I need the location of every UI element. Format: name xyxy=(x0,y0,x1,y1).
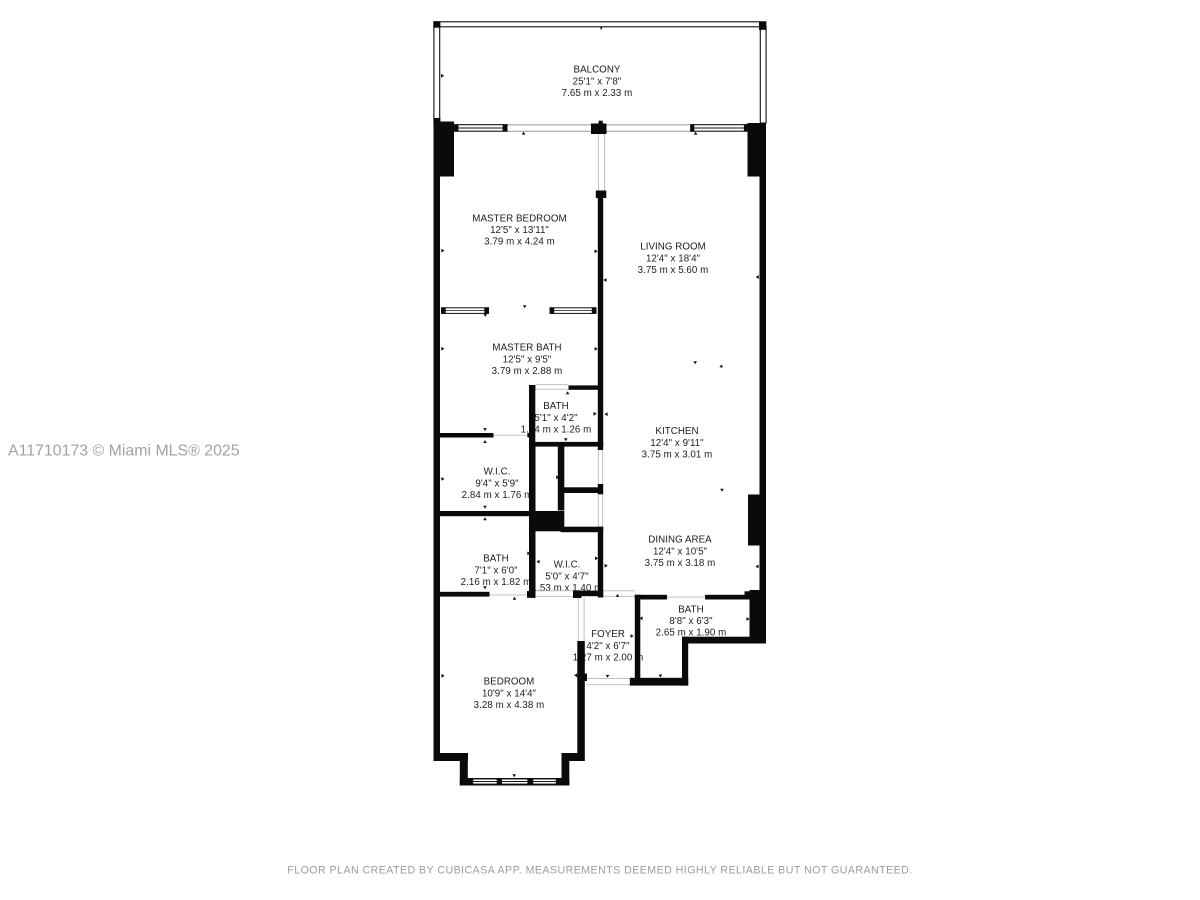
svg-text:3.28 m x 4.38 m: 3.28 m x 4.38 m xyxy=(474,700,545,711)
svg-text:25'1" x 7'8": 25'1" x 7'8" xyxy=(573,76,622,87)
svg-text:BEDROOM: BEDROOM xyxy=(484,677,535,688)
svg-text:A11710173 © Miami MLS® 2025: A11710173 © Miami MLS® 2025 xyxy=(8,443,240,460)
svg-text:3.75 m x 5.60 m: 3.75 m x 5.60 m xyxy=(638,265,709,276)
svg-text:BATH: BATH xyxy=(678,604,703,615)
svg-text:3.79 m x 2.88 m: 3.79 m x 2.88 m xyxy=(492,366,563,377)
svg-text:DINING AREA: DINING AREA xyxy=(648,535,712,546)
svg-text:W.I.C.: W.I.C. xyxy=(484,467,511,478)
svg-text:KITCHEN: KITCHEN xyxy=(655,426,698,437)
svg-text:3.75 m x 3.18 m: 3.75 m x 3.18 m xyxy=(645,558,716,569)
svg-text:5'0" x 4'7": 5'0" x 4'7" xyxy=(545,571,589,582)
svg-text:FOYER: FOYER xyxy=(591,629,625,640)
svg-text:BALCONY: BALCONY xyxy=(574,65,621,76)
svg-text:LIVING ROOM: LIVING ROOM xyxy=(640,242,706,253)
svg-text:12'4" x 9'11": 12'4" x 9'11" xyxy=(650,438,704,449)
svg-text:12'4" x 18'4": 12'4" x 18'4" xyxy=(646,253,701,264)
svg-text:W.I.C.: W.I.C. xyxy=(554,560,581,571)
svg-text:MASTER BEDROOM: MASTER BEDROOM xyxy=(472,213,566,224)
svg-text:12'5" x 9'5": 12'5" x 9'5" xyxy=(503,354,552,365)
svg-text:10'9" x 14'4": 10'9" x 14'4" xyxy=(482,688,537,699)
svg-text:3.75 m x 3.01 m: 3.75 m x 3.01 m xyxy=(642,449,713,460)
svg-text:8'8" x 6'3": 8'8" x 6'3" xyxy=(669,616,713,627)
svg-text:7.65 m x 2.33 m: 7.65 m x 2.33 m xyxy=(562,88,633,99)
svg-text:FLOOR PLAN CREATED BY CUBICASA: FLOOR PLAN CREATED BY CUBICASA APP. MEAS… xyxy=(287,865,912,877)
svg-text:2.16 m x 1.82 m: 2.16 m x 1.82 m xyxy=(461,577,532,588)
svg-text:3.79 m x 4.24 m: 3.79 m x 4.24 m xyxy=(484,237,555,248)
svg-text:12'4" x 10'5": 12'4" x 10'5" xyxy=(653,546,708,557)
svg-text:7'1" x 6'0": 7'1" x 6'0" xyxy=(474,565,518,576)
svg-text:12'5" x 13'11": 12'5" x 13'11" xyxy=(490,225,549,236)
svg-text:BATH: BATH xyxy=(543,401,568,412)
svg-text:4'2" x 6'7": 4'2" x 6'7" xyxy=(586,641,630,652)
svg-text:9'4" x 5'9": 9'4" x 5'9" xyxy=(475,478,519,489)
svg-text:BATH: BATH xyxy=(483,554,508,565)
svg-text:5'1" x 4'2": 5'1" x 4'2" xyxy=(534,413,578,424)
svg-text:2.84 m x 1.76 m: 2.84 m x 1.76 m xyxy=(462,490,533,501)
svg-text:MASTER BATH: MASTER BATH xyxy=(492,343,561,354)
